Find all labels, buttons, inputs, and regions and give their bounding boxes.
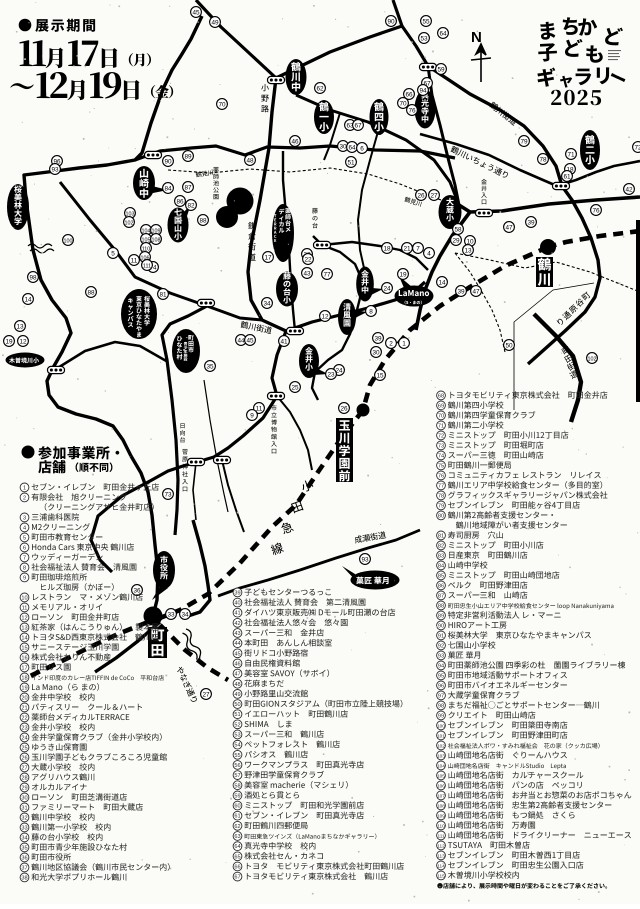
svg-text:48: 48 bbox=[246, 157, 254, 164]
svg-text:5: 5 bbox=[111, 250, 115, 257]
svg-text:1: 1 bbox=[23, 485, 26, 491]
svg-text:95: 95 bbox=[438, 673, 444, 679]
svg-text:19: 19 bbox=[5, 338, 13, 345]
svg-text:34: 34 bbox=[21, 835, 27, 841]
svg-text:25: 25 bbox=[291, 384, 299, 391]
svg-text:49: 49 bbox=[211, 19, 219, 26]
svg-text:56: 56 bbox=[234, 763, 240, 769]
svg-text:100: 100 bbox=[64, 238, 73, 244]
svg-text:31: 31 bbox=[21, 805, 27, 811]
svg-text:86: 86 bbox=[176, 198, 184, 205]
svg-text:89: 89 bbox=[184, 153, 192, 160]
svg-text:28: 28 bbox=[21, 775, 27, 781]
svg-text:98: 98 bbox=[29, 274, 37, 281]
svg-text:8: 8 bbox=[23, 565, 26, 571]
svg-text:60: 60 bbox=[234, 804, 240, 810]
svg-text:13: 13 bbox=[464, 247, 472, 254]
svg-text:15: 15 bbox=[376, 372, 384, 379]
svg-text:2: 2 bbox=[23, 495, 26, 501]
svg-text:74: 74 bbox=[438, 453, 444, 459]
svg-text:17: 17 bbox=[21, 665, 27, 671]
svg-text:29: 29 bbox=[21, 785, 27, 791]
svg-text:76: 76 bbox=[438, 473, 444, 479]
svg-text:112: 112 bbox=[437, 843, 445, 848]
svg-text:17: 17 bbox=[264, 254, 272, 261]
svg-text:27: 27 bbox=[21, 765, 27, 771]
svg-text:68: 68 bbox=[438, 393, 444, 399]
svg-text:79: 79 bbox=[438, 503, 444, 509]
svg-text:86: 86 bbox=[438, 583, 444, 589]
svg-text:12: 12 bbox=[321, 313, 329, 320]
svg-text:83: 83 bbox=[438, 553, 444, 559]
svg-text:109: 109 bbox=[437, 813, 445, 818]
svg-text:11: 11 bbox=[22, 605, 28, 611]
svg-text:39: 39 bbox=[527, 219, 535, 226]
svg-text:62: 62 bbox=[316, 85, 324, 92]
svg-text:93: 93 bbox=[361, 556, 369, 563]
svg-text:35: 35 bbox=[206, 363, 214, 370]
svg-text:98: 98 bbox=[438, 703, 444, 709]
svg-text:47: 47 bbox=[505, 224, 513, 231]
svg-text:59: 59 bbox=[437, 66, 445, 73]
svg-text:77: 77 bbox=[323, 271, 331, 278]
svg-text:14: 14 bbox=[24, 296, 32, 303]
svg-text:50: 50 bbox=[505, 342, 513, 349]
svg-text:102: 102 bbox=[125, 220, 134, 226]
svg-text:23: 23 bbox=[21, 725, 27, 731]
svg-text:5: 5 bbox=[23, 535, 26, 541]
svg-text:82: 82 bbox=[187, 202, 195, 209]
svg-text:61: 61 bbox=[234, 814, 240, 820]
svg-text:113: 113 bbox=[437, 853, 445, 858]
svg-text:78: 78 bbox=[539, 156, 547, 163]
svg-text:64: 64 bbox=[234, 844, 240, 850]
svg-text:36: 36 bbox=[21, 855, 27, 861]
svg-text:102: 102 bbox=[588, 356, 597, 362]
svg-text:85: 85 bbox=[438, 573, 444, 579]
svg-text:90: 90 bbox=[387, 18, 395, 25]
svg-text:67: 67 bbox=[234, 875, 240, 881]
svg-text:70: 70 bbox=[438, 413, 444, 419]
svg-text:27: 27 bbox=[430, 192, 438, 199]
svg-text:11: 11 bbox=[256, 405, 263, 412]
svg-text:7: 7 bbox=[416, 245, 420, 252]
svg-text:41: 41 bbox=[234, 611, 240, 617]
svg-text:79: 79 bbox=[520, 138, 528, 145]
svg-text:3: 3 bbox=[23, 515, 26, 521]
svg-text:21: 21 bbox=[403, 245, 411, 252]
svg-text:44: 44 bbox=[234, 641, 240, 647]
svg-text:88: 88 bbox=[87, 289, 95, 296]
svg-text:46: 46 bbox=[234, 661, 240, 667]
svg-text:41: 41 bbox=[280, 338, 288, 345]
svg-text:10: 10 bbox=[21, 595, 27, 601]
svg-text:81: 81 bbox=[438, 533, 444, 539]
svg-text:29: 29 bbox=[452, 237, 460, 244]
svg-text:111: 111 bbox=[143, 263, 151, 269]
svg-text:18: 18 bbox=[21, 675, 27, 681]
svg-text:45: 45 bbox=[246, 337, 254, 344]
svg-text:34: 34 bbox=[181, 611, 189, 618]
svg-text:65: 65 bbox=[234, 854, 240, 860]
svg-text:4: 4 bbox=[427, 250, 431, 257]
svg-text:47: 47 bbox=[234, 672, 240, 678]
svg-text:57: 57 bbox=[234, 773, 240, 779]
svg-text:19: 19 bbox=[399, 271, 407, 278]
svg-text:14: 14 bbox=[438, 279, 446, 286]
svg-text:93: 93 bbox=[51, 166, 59, 173]
svg-text:39: 39 bbox=[234, 590, 240, 596]
svg-text:87: 87 bbox=[184, 184, 192, 191]
svg-text:90: 90 bbox=[164, 158, 172, 165]
svg-text:13: 13 bbox=[16, 323, 24, 330]
svg-text:76: 76 bbox=[592, 207, 600, 214]
svg-text:53: 53 bbox=[234, 733, 240, 739]
svg-text:34: 34 bbox=[263, 300, 271, 307]
svg-text:36: 36 bbox=[133, 587, 141, 594]
svg-text:64: 64 bbox=[348, 144, 356, 151]
svg-text:7: 7 bbox=[23, 555, 26, 561]
svg-text:108: 108 bbox=[152, 237, 161, 243]
svg-text:18: 18 bbox=[383, 245, 391, 252]
svg-text:92: 92 bbox=[438, 643, 444, 649]
svg-text:45: 45 bbox=[234, 651, 240, 657]
svg-text:30: 30 bbox=[339, 143, 347, 150]
svg-text:12: 12 bbox=[21, 615, 27, 621]
svg-text:77: 77 bbox=[438, 483, 444, 489]
svg-text:71: 71 bbox=[567, 151, 575, 158]
svg-text:51: 51 bbox=[234, 712, 240, 718]
svg-text:114: 114 bbox=[437, 863, 445, 868]
svg-text:25: 25 bbox=[21, 745, 27, 751]
svg-text:14: 14 bbox=[21, 635, 27, 641]
svg-text:32: 32 bbox=[21, 815, 27, 821]
svg-text:43: 43 bbox=[234, 631, 240, 637]
svg-text:4: 4 bbox=[23, 525, 26, 531]
svg-text:26: 26 bbox=[340, 405, 348, 412]
svg-text:80: 80 bbox=[438, 513, 444, 519]
svg-text:88: 88 bbox=[199, 217, 207, 224]
svg-text:66: 66 bbox=[234, 864, 240, 870]
svg-text:107: 107 bbox=[437, 793, 445, 798]
svg-text:84: 84 bbox=[438, 563, 444, 569]
svg-text:55: 55 bbox=[422, 18, 430, 25]
svg-text:63: 63 bbox=[234, 834, 240, 840]
svg-text:89: 89 bbox=[438, 613, 444, 619]
svg-text:39: 39 bbox=[457, 288, 465, 295]
svg-text:24: 24 bbox=[383, 285, 391, 292]
svg-text:108: 108 bbox=[437, 803, 445, 808]
svg-text:33: 33 bbox=[167, 611, 175, 618]
svg-text:39: 39 bbox=[374, 335, 382, 342]
svg-text:21: 21 bbox=[21, 705, 27, 711]
svg-text:104: 104 bbox=[437, 763, 445, 768]
svg-text:87: 87 bbox=[438, 593, 444, 599]
svg-text:11: 11 bbox=[131, 257, 138, 264]
svg-text:72: 72 bbox=[634, 144, 640, 151]
svg-text:6: 6 bbox=[360, 145, 364, 152]
svg-text:2: 2 bbox=[389, 340, 393, 347]
svg-text:43: 43 bbox=[303, 270, 311, 277]
svg-text:9: 9 bbox=[250, 412, 254, 419]
svg-text:66: 66 bbox=[405, 91, 413, 98]
svg-text:76: 76 bbox=[408, 107, 416, 114]
svg-text:81: 81 bbox=[159, 291, 167, 298]
svg-text:22: 22 bbox=[21, 715, 27, 721]
svg-text:90: 90 bbox=[438, 623, 444, 629]
svg-text:23: 23 bbox=[327, 371, 335, 378]
svg-text:94: 94 bbox=[419, 87, 427, 94]
svg-text:78: 78 bbox=[438, 493, 444, 499]
svg-text:26: 26 bbox=[417, 192, 425, 199]
svg-text:73: 73 bbox=[164, 491, 172, 498]
svg-text:111: 111 bbox=[437, 833, 445, 838]
svg-text:96: 96 bbox=[438, 683, 444, 689]
svg-text:105: 105 bbox=[437, 773, 445, 778]
svg-text:50: 50 bbox=[234, 702, 240, 708]
svg-text:53: 53 bbox=[420, 35, 428, 42]
svg-text:106: 106 bbox=[437, 783, 445, 788]
svg-text:99: 99 bbox=[438, 713, 444, 719]
svg-text:N: N bbox=[471, 29, 482, 46]
svg-text:6: 6 bbox=[23, 545, 26, 551]
svg-text:71: 71 bbox=[438, 423, 444, 429]
svg-text:93: 93 bbox=[438, 653, 444, 659]
svg-text:82: 82 bbox=[438, 543, 444, 549]
svg-text:97: 97 bbox=[438, 693, 444, 699]
svg-text:42: 42 bbox=[234, 621, 240, 627]
svg-text:61: 61 bbox=[563, 173, 571, 180]
svg-text:8: 8 bbox=[369, 308, 373, 315]
svg-text:42: 42 bbox=[625, 186, 633, 193]
svg-text:20: 20 bbox=[21, 695, 27, 701]
svg-text:100: 100 bbox=[437, 723, 445, 728]
svg-text:73: 73 bbox=[438, 443, 444, 449]
svg-text:37: 37 bbox=[21, 865, 27, 871]
svg-text:19: 19 bbox=[21, 685, 27, 691]
svg-text:52: 52 bbox=[234, 722, 240, 728]
svg-text:91: 91 bbox=[438, 633, 444, 639]
svg-text:84: 84 bbox=[164, 185, 172, 192]
svg-text:9: 9 bbox=[23, 575, 26, 581]
svg-text:70: 70 bbox=[218, 101, 226, 108]
svg-text:48: 48 bbox=[234, 682, 240, 688]
svg-text:51: 51 bbox=[347, 159, 355, 166]
svg-text:1: 1 bbox=[402, 340, 406, 347]
svg-text:88: 88 bbox=[438, 603, 444, 609]
svg-text:49: 49 bbox=[234, 692, 240, 698]
svg-text:115: 115 bbox=[437, 873, 445, 878]
svg-text:40: 40 bbox=[234, 601, 240, 607]
svg-text:62: 62 bbox=[234, 824, 240, 830]
svg-text:59: 59 bbox=[234, 793, 240, 799]
svg-text:47: 47 bbox=[472, 288, 480, 295]
svg-text:54: 54 bbox=[234, 743, 240, 749]
svg-text:110: 110 bbox=[437, 823, 445, 828]
svg-text:15: 15 bbox=[21, 645, 27, 651]
svg-text:75: 75 bbox=[438, 463, 444, 469]
svg-text:103: 103 bbox=[437, 753, 445, 758]
svg-text:22: 22 bbox=[304, 256, 312, 263]
svg-text:26: 26 bbox=[21, 755, 27, 761]
svg-text:70: 70 bbox=[399, 100, 407, 107]
svg-text:55: 55 bbox=[234, 753, 240, 759]
svg-text:16: 16 bbox=[21, 655, 27, 661]
svg-text:58: 58 bbox=[454, 226, 462, 233]
svg-text:13: 13 bbox=[21, 625, 27, 631]
svg-text:58: 58 bbox=[234, 783, 240, 789]
svg-text:72: 72 bbox=[438, 433, 444, 439]
svg-text:101: 101 bbox=[437, 733, 445, 738]
svg-text:67: 67 bbox=[354, 122, 362, 129]
svg-text:33: 33 bbox=[21, 825, 27, 831]
svg-text:102: 102 bbox=[437, 743, 445, 748]
svg-text:45: 45 bbox=[192, 9, 200, 16]
svg-text:24: 24 bbox=[21, 735, 27, 741]
svg-text:30: 30 bbox=[372, 349, 380, 356]
svg-text:12: 12 bbox=[19, 338, 27, 345]
svg-text:35: 35 bbox=[21, 845, 27, 851]
svg-text:44: 44 bbox=[237, 337, 245, 344]
svg-text:64: 64 bbox=[439, 30, 447, 37]
svg-text:38: 38 bbox=[21, 875, 27, 881]
svg-text:27: 27 bbox=[202, 691, 210, 698]
svg-text:69: 69 bbox=[438, 403, 444, 409]
svg-text:30: 30 bbox=[21, 795, 27, 801]
svg-text:94: 94 bbox=[438, 663, 444, 669]
